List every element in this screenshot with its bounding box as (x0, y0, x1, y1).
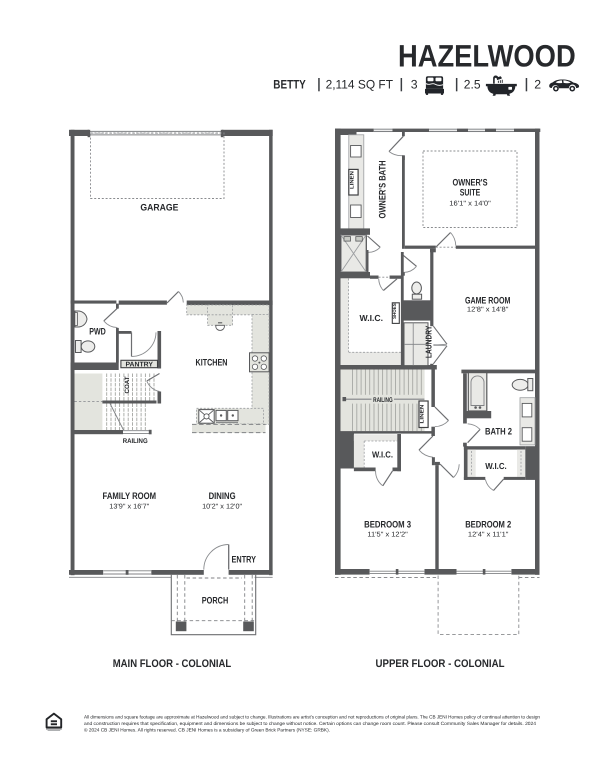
svg-text:SUITE: SUITE (460, 187, 481, 198)
svg-text:3: 3 (411, 77, 418, 91)
svg-text:COAT: COAT (124, 376, 131, 393)
svg-text:W.I.C.: W.I.C. (360, 313, 384, 323)
svg-text:OWNER'S BATH: OWNER'S BATH (378, 160, 389, 218)
svg-text:2.5: 2.5 (464, 77, 481, 91)
svg-text:GAME ROOM: GAME ROOM (465, 295, 511, 306)
svg-text:16'1" x 14'0": 16'1" x 14'0" (449, 201, 491, 208)
svg-text:RAILING: RAILING (373, 397, 393, 404)
svg-text:KITCHEN: KITCHEN (196, 357, 228, 368)
svg-text:ENTRY: ENTRY (232, 554, 257, 565)
svg-text:LINEN: LINEN (420, 404, 426, 423)
svg-text:12'4" x 11'1": 12'4" x 11'1" (468, 531, 509, 538)
svg-text:2: 2 (534, 77, 541, 91)
svg-text:GARAGE: GARAGE (140, 203, 178, 214)
svg-text:W.I.C.: W.I.C. (485, 461, 507, 471)
svg-text:LINEN: LINEN (349, 171, 355, 189)
svg-text:HAZELWOOD: HAZELWOOD (398, 38, 576, 73)
svg-text:BATH 2: BATH 2 (485, 426, 512, 437)
svg-text:All dimensions and square foot: All dimensions and square footage are ap… (84, 715, 540, 720)
svg-text:FAMILY ROOM: FAMILY ROOM (103, 491, 157, 502)
svg-text:UPPER FLOOR - COLONIAL: UPPER FLOOR - COLONIAL (376, 658, 505, 670)
svg-text:13'9" x 16'7": 13'9" x 16'7" (109, 503, 150, 510)
svg-text:MAIN FLOOR - COLONIAL: MAIN FLOOR - COLONIAL (113, 658, 232, 670)
svg-text:PWD: PWD (89, 327, 106, 338)
svg-text:PANTRY: PANTRY (125, 362, 153, 369)
svg-text:BEDROOM 2: BEDROOM 2 (465, 519, 511, 530)
svg-text:RAILING: RAILING (123, 438, 148, 445)
svg-text:W.I.C.: W.I.C. (372, 449, 393, 459)
svg-text:DINING: DINING (209, 491, 236, 502)
svg-text:10'2" x 12'0": 10'2" x 12'0" (202, 503, 243, 510)
svg-text:and construction requires that: and construction requires that specifica… (84, 721, 536, 726)
svg-text:LAUNDRY: LAUNDRY (423, 325, 433, 358)
svg-text:2,114 SQ FT: 2,114 SQ FT (326, 77, 394, 91)
svg-text:BETTY: BETTY (273, 77, 306, 91)
svg-text:12'8" x 14'8": 12'8" x 14'8" (467, 307, 509, 314)
svg-text:BEDROOM 3: BEDROOM 3 (364, 519, 411, 530)
svg-text:11'5" x 12'2": 11'5" x 12'2" (367, 531, 408, 538)
svg-text:PORCH: PORCH (202, 595, 229, 606)
svg-text:© 2024 CB JENI Homes. All righ: © 2024 CB JENI Homes. All rights reserve… (84, 727, 330, 732)
svg-text:SHOES: SHOES (392, 303, 398, 319)
